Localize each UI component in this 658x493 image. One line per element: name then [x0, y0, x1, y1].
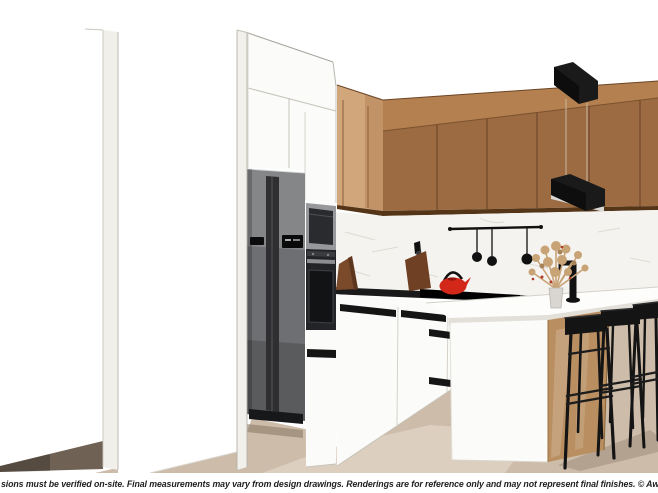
built-in-oven: [306, 249, 336, 330]
wall-partition-left: [0, 0, 103, 466]
compact-appliance: [306, 203, 336, 250]
marble-backsplash: [334, 210, 658, 297]
wood-upper-cabinets: [337, 81, 658, 216]
footer-disclaimer-text: sions must be verified on-site. Final me…: [1, 479, 658, 489]
wall-edge: [237, 30, 247, 470]
island-front-panel: [450, 320, 548, 462]
vase: [549, 288, 563, 308]
drawer-handle: [307, 349, 336, 358]
fridge-display: [282, 235, 303, 248]
kitchen-rendering-image: sions must be verified on-site. Final me…: [0, 0, 658, 493]
refrigerator: [247, 169, 305, 424]
wall-partitions: [0, 0, 249, 473]
oven-column: [305, 201, 336, 467]
wall-edge: [103, 30, 118, 470]
wall-partition-right: [118, 0, 237, 473]
kitchen-render-scene: [0, 0, 658, 473]
fridge-dispenser: [250, 237, 264, 245]
